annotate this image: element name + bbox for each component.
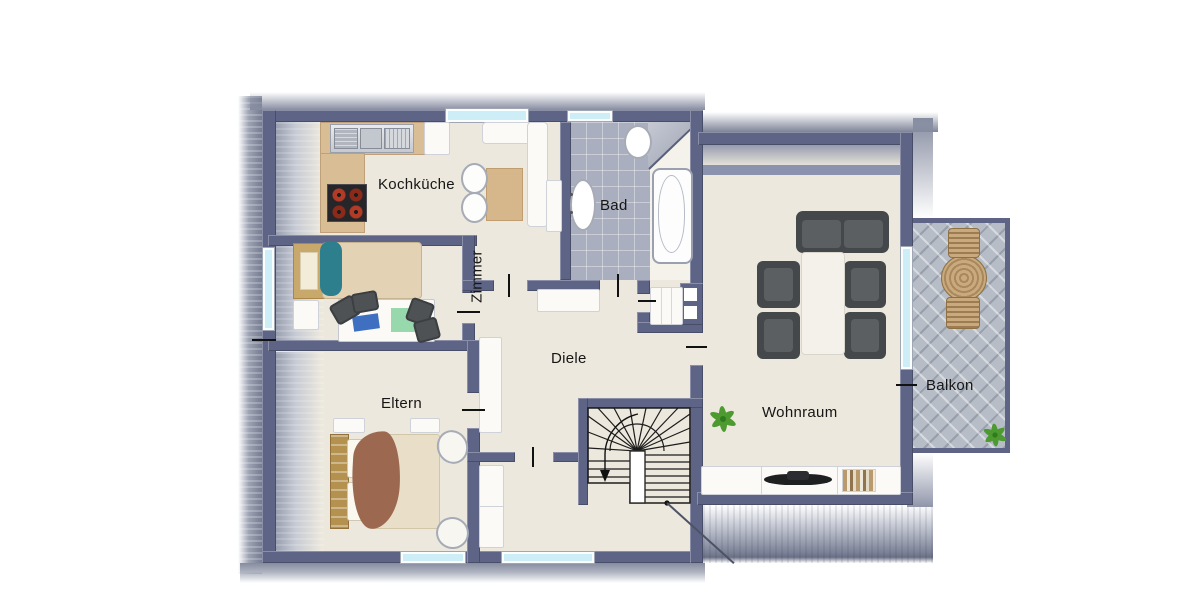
wall-annex-right-lower [900, 368, 913, 505]
balcony-table [941, 255, 987, 301]
wall-tick-left [252, 339, 276, 341]
armchair [757, 261, 800, 308]
bath-sink [624, 125, 652, 159]
dining-chair [461, 192, 488, 223]
dining-chair [461, 163, 488, 194]
stove [327, 184, 367, 222]
balcony-chair [946, 297, 980, 329]
knee-wall-wohnraum [703, 165, 900, 175]
window-zimmer-left [263, 248, 274, 330]
sink-drainer [384, 128, 410, 149]
hall-sideboard [537, 289, 600, 312]
room-label-diele: Diele [551, 350, 587, 367]
room-label-eltern: Eltern [381, 395, 422, 412]
room-label-kochkueche: Kochküche [378, 176, 455, 193]
door-tick-zimmer [457, 311, 480, 313]
roof-overhang-annex-top [695, 112, 938, 132]
kitchen-cabinet-side [546, 180, 562, 232]
door-tick-closet [638, 300, 656, 302]
plant-icon [706, 402, 740, 436]
armchair-cushion [851, 268, 879, 301]
room-label-balkon: Balkon [926, 377, 974, 394]
roof-strip-annex-right [913, 118, 933, 218]
closet-shaft-frame [680, 283, 703, 325]
armchair-cushion [851, 319, 879, 352]
roof-overhang-left [238, 96, 262, 574]
wall-annex-top [698, 132, 913, 145]
window-eltern-bottom [401, 552, 465, 563]
tap-dot [570, 193, 573, 196]
tv [764, 474, 832, 485]
bookshelf-books [842, 469, 876, 492]
room-label-bad: Bad [600, 197, 628, 214]
floorplan: Kochküche Bad Zimmer Diele Eltern Wohnra… [0, 0, 1200, 600]
door-tick-bath [617, 274, 619, 297]
staircase [578, 398, 703, 563]
room-label-zimmer: Zimmer [469, 244, 486, 310]
sofa-cushion [844, 220, 883, 248]
dining-bench-right [527, 122, 548, 227]
door-tick-balcony [896, 384, 917, 386]
tap-dot [570, 211, 573, 214]
door-tick-wohnraum [686, 346, 707, 348]
bathtub-basin [658, 175, 685, 253]
window-balcony-door [901, 247, 912, 369]
kitchen-cabinet [424, 122, 450, 155]
roof-overhang-bottom [240, 563, 705, 583]
plant-icon [980, 420, 1010, 450]
wall-closet-left-upper [637, 280, 650, 294]
door-tick-hall [532, 447, 534, 467]
bathtub [652, 168, 693, 264]
wall-hall-right [553, 452, 580, 462]
closet-niche [650, 287, 683, 325]
shaft-cell [684, 288, 697, 301]
kitchen-sink [330, 124, 414, 153]
window-bath-top [568, 111, 612, 121]
bed-pillow [300, 252, 318, 290]
dining-table [486, 168, 523, 221]
balcony-chair [948, 228, 980, 258]
ceiling-slope-wohnraum [703, 145, 900, 167]
zimmer-shelf [293, 300, 319, 330]
ceiling-slope-eltern [276, 352, 324, 551]
coffee-table [801, 252, 845, 355]
roof-slope-annex-bottom [697, 505, 933, 563]
wall-annex-right-upper [900, 132, 913, 247]
wall-outer-left [262, 110, 276, 563]
single-bed-blanket-teal [320, 241, 342, 296]
sink-basin [360, 128, 382, 149]
sink-basin [334, 128, 358, 149]
eltern-nightstand [333, 418, 365, 433]
armchair [844, 312, 886, 359]
wall-hall-left [467, 452, 515, 462]
armchair [757, 312, 800, 359]
ceiling-slope-kitchen [276, 122, 324, 236]
washbasin [570, 179, 596, 231]
shaft-cell [684, 306, 697, 319]
double-bed [330, 432, 438, 529]
door-tick-kitchen [508, 274, 510, 297]
tv-center [787, 471, 809, 480]
armchair [844, 261, 886, 308]
door-tick-eltern [462, 409, 485, 411]
sofa-cushion [802, 220, 841, 248]
roof-overhang-top [250, 92, 705, 110]
hall-wardrobe [479, 337, 502, 433]
hall-wardrobe [479, 465, 504, 548]
window-kitchen-top [446, 109, 528, 122]
sofa [796, 211, 889, 253]
armchair-cushion [764, 268, 793, 301]
eltern-nightstand [410, 418, 440, 433]
armchair-cushion [764, 319, 793, 352]
room-label-wohnraum: Wohnraum [762, 404, 838, 421]
